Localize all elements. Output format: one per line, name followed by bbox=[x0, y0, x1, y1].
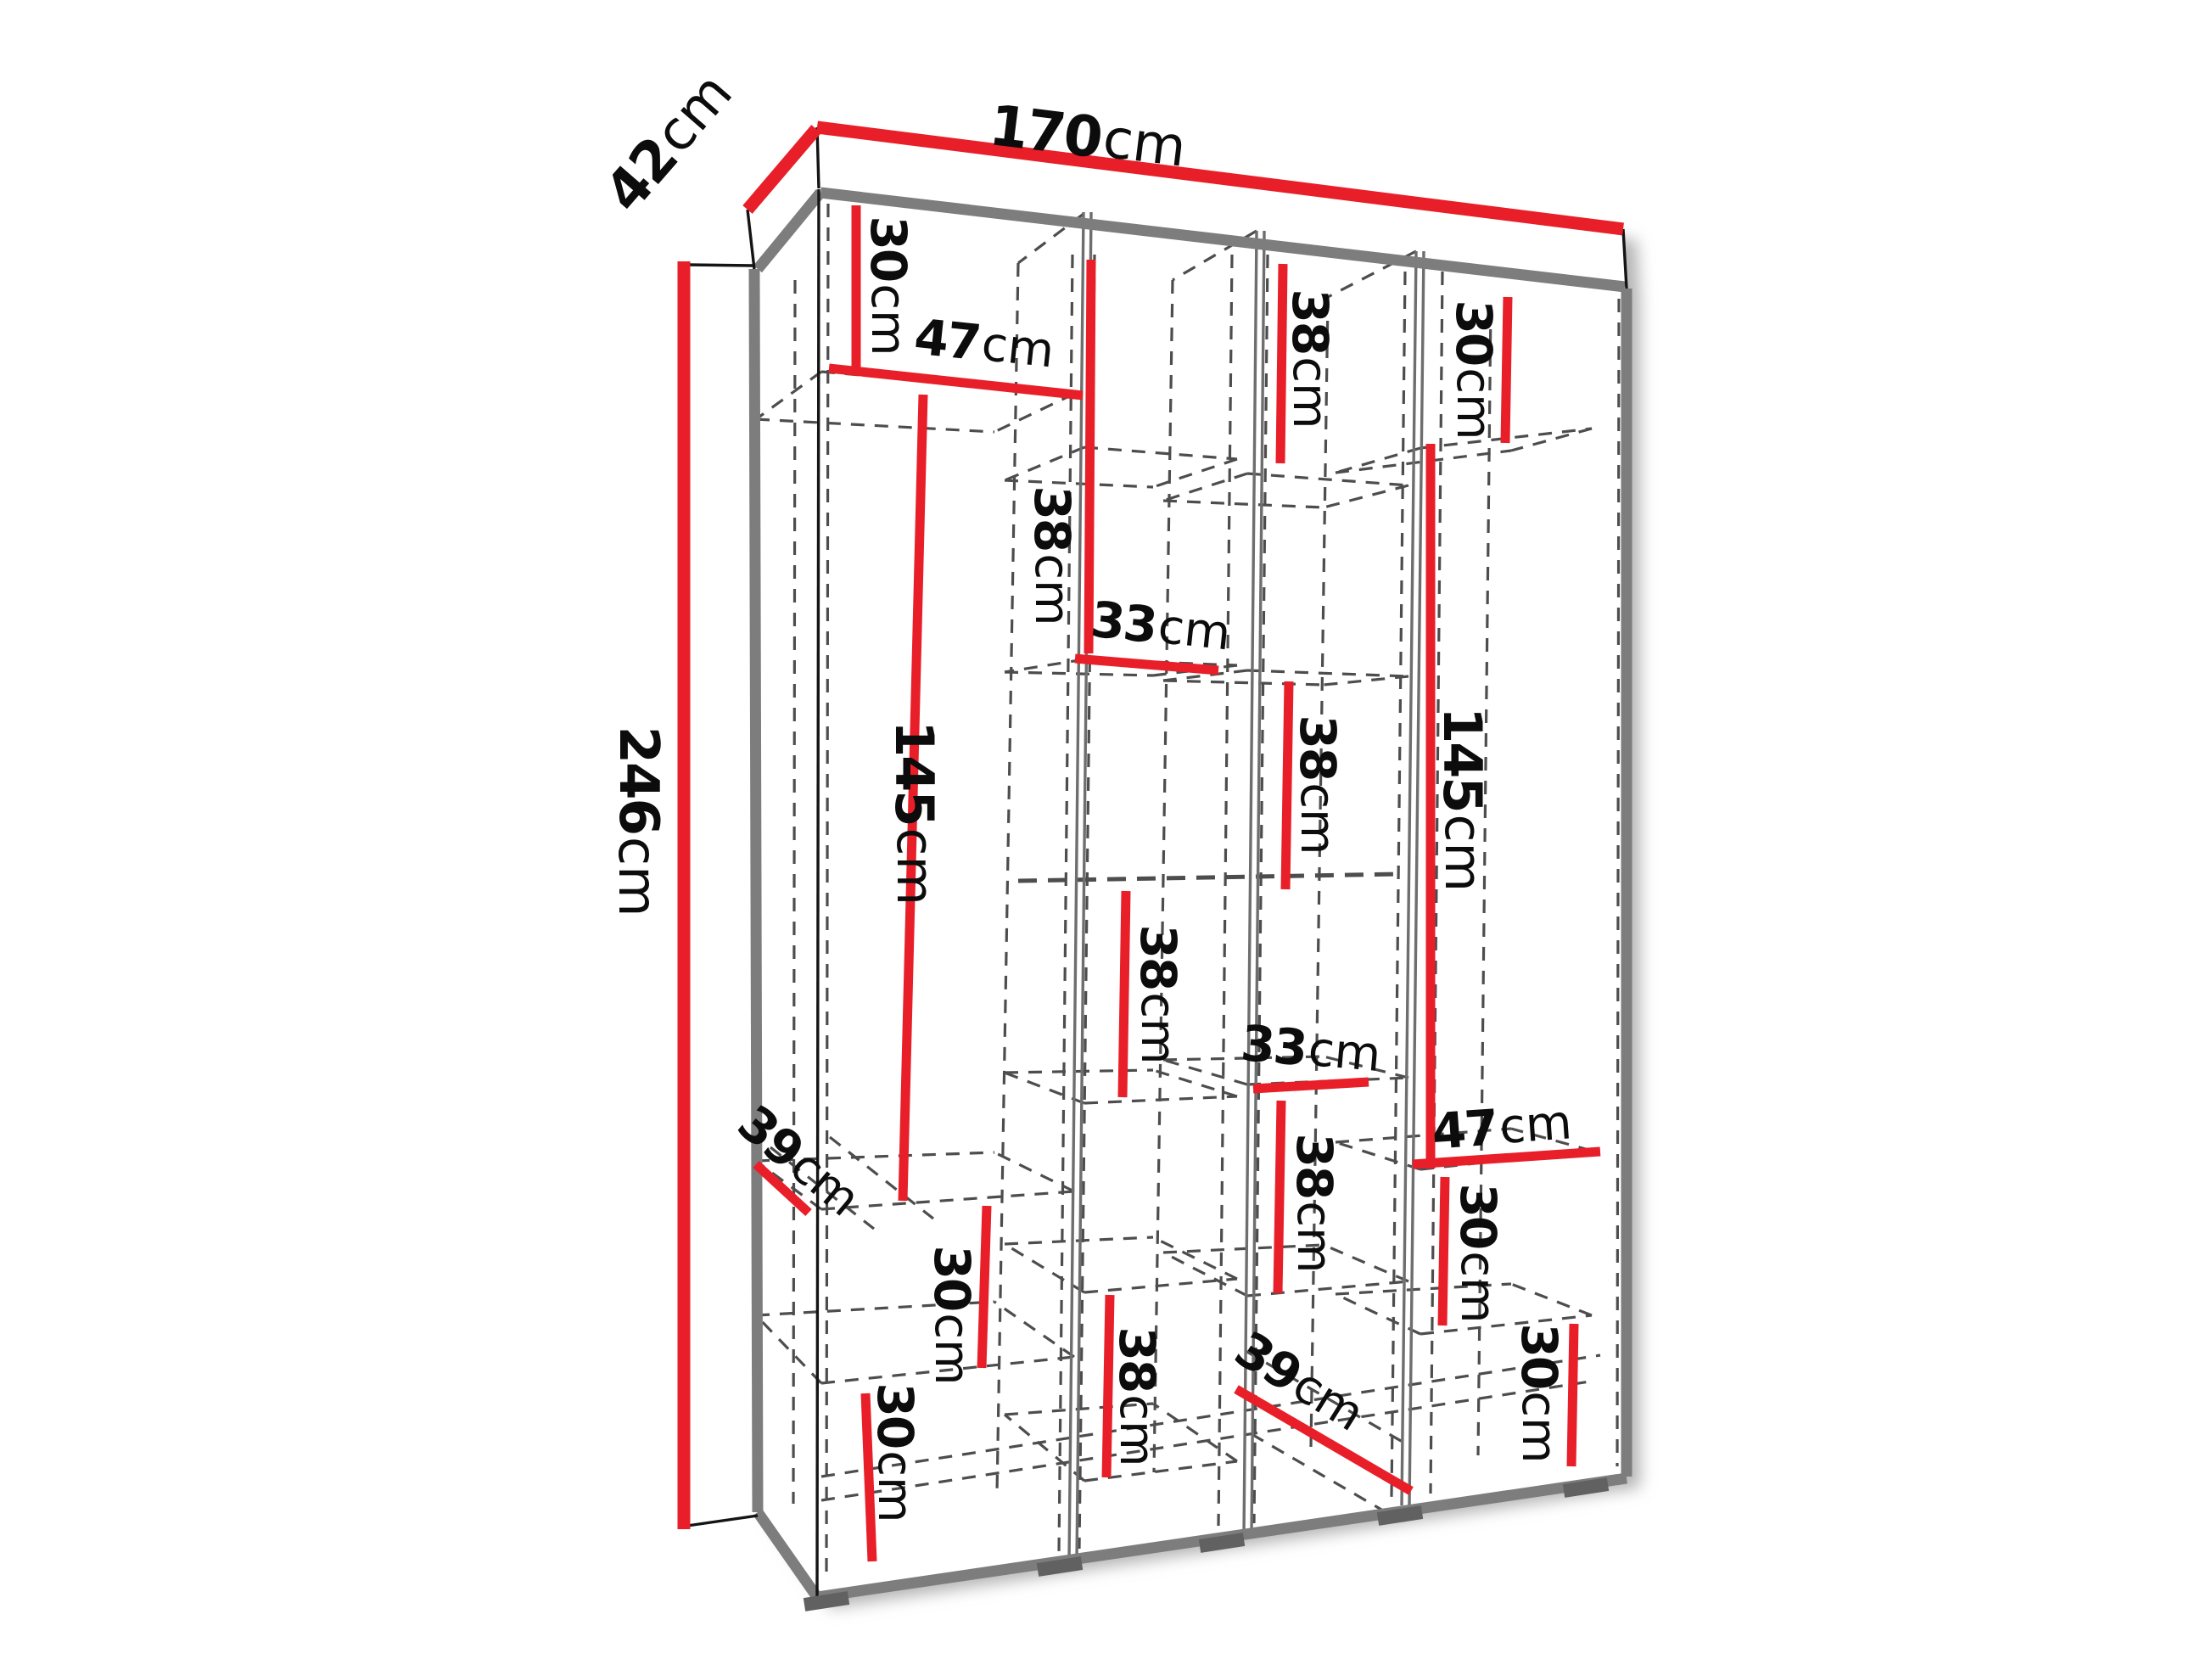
dimension-label-38cm: 38cm bbox=[1108, 1326, 1166, 1466]
dimension-line-red bbox=[1089, 260, 1091, 653]
dimension-label-38cm: 38cm bbox=[1285, 1133, 1343, 1273]
dimension-tick bbox=[687, 265, 753, 266]
dimension-line-red bbox=[1442, 1177, 1445, 1326]
dimension-label-38cm: 38cm bbox=[1129, 924, 1187, 1064]
diagram-root: 42cm170cm246cm30cm47cm145cm39cm30cm30cm3… bbox=[0, 0, 2212, 1659]
dimension-label-38cm: 38cm bbox=[1023, 485, 1081, 625]
dimension-label-145cm: 145cm bbox=[884, 720, 946, 905]
cabinet-edge-gray bbox=[754, 269, 758, 1512]
cabinet-foot bbox=[1038, 1563, 1082, 1570]
dimension-line-red bbox=[1571, 1324, 1574, 1466]
dimension-label-42cm: 42cm bbox=[591, 61, 746, 225]
cabinet-face-side bbox=[754, 189, 819, 1597]
dimension-line-red bbox=[1285, 681, 1289, 889]
dimension-label-38cm: 38cm bbox=[1281, 289, 1339, 429]
dimension-line-red bbox=[1278, 1101, 1281, 1293]
dimension-label-30cm: 30cm bbox=[860, 216, 917, 356]
cabinet-foot bbox=[1200, 1539, 1244, 1546]
dimension-label-145cm: 145cm bbox=[1432, 707, 1494, 892]
dimension-label-30cm: 30cm bbox=[1449, 1183, 1507, 1323]
cabinet-foot bbox=[1564, 1484, 1608, 1491]
dimension-label-47cm: 47cm bbox=[1430, 1093, 1573, 1160]
dimension-label-38cm: 38cm bbox=[1289, 715, 1347, 855]
dimension-line-red bbox=[1123, 891, 1126, 1097]
dimension-line-red bbox=[982, 1206, 987, 1368]
dimension-label-30cm: 30cm bbox=[1445, 300, 1503, 440]
dimension-tick bbox=[687, 1516, 758, 1526]
dimension-line-red bbox=[1505, 297, 1508, 443]
wardrobe-dimension-diagram: 42cm170cm246cm30cm47cm145cm39cm30cm30cm3… bbox=[0, 0, 2212, 1659]
cabinet-foot bbox=[804, 1598, 848, 1605]
cabinet-foot bbox=[1378, 1512, 1422, 1519]
dimension-label-246cm: 246cm bbox=[607, 726, 669, 916]
dimension-label-30cm: 30cm bbox=[923, 1245, 981, 1385]
cabinet-edge-black bbox=[817, 189, 819, 1597]
dimension-label-30cm: 30cm bbox=[1510, 1323, 1568, 1463]
dimension-label-30cm: 30cm bbox=[866, 1382, 924, 1522]
